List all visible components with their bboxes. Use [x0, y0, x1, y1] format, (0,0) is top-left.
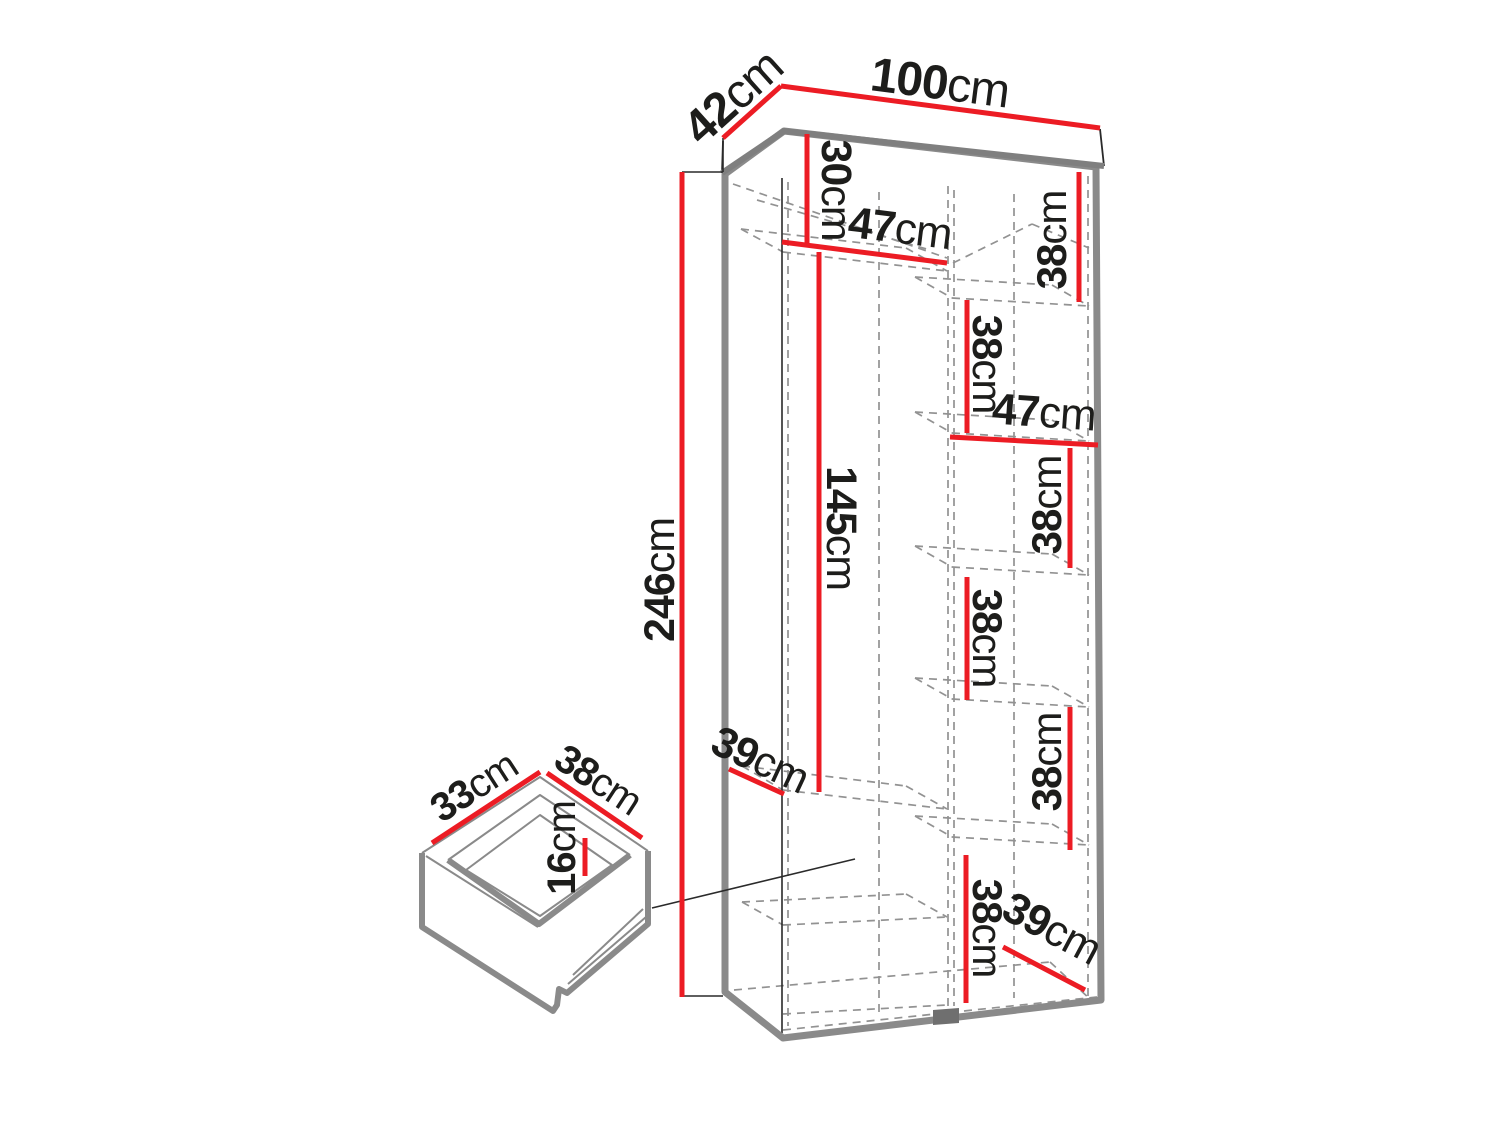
dimension-value: 38: [1023, 766, 1070, 811]
dimension-label: 38cm: [1023, 713, 1070, 812]
dimension-label: 145cm: [817, 466, 865, 590]
dimension-unit: cm: [540, 801, 584, 852]
dimension-label: 38cm: [1028, 191, 1075, 290]
dimension-value: 47: [991, 384, 1041, 436]
dimension-label: 38cm: [965, 589, 1012, 688]
dimension-value: 30: [812, 139, 860, 185]
dimension-value: 47: [846, 197, 899, 251]
dimension-value: 38: [965, 315, 1012, 360]
dimension-value: 145: [817, 466, 865, 535]
dimension-label: 47cm: [991, 384, 1098, 440]
dimension-value: 38: [965, 589, 1012, 634]
dimension-unit: cm: [1028, 191, 1075, 245]
dimension-value: 16: [540, 852, 584, 895]
diagram-canvas: 42cm100cm246cm30cm47cm145cm39cm38cm38cm4…: [0, 0, 1500, 1125]
dimension-unit: cm: [892, 203, 954, 259]
dimension-value: 100: [868, 48, 951, 110]
dimension-value: 246: [636, 573, 684, 642]
dimension-unit: cm: [1023, 456, 1070, 510]
dimension-unit: cm: [817, 535, 865, 590]
dimension-unit: cm: [965, 633, 1012, 687]
dimension-label: 16cm: [540, 801, 584, 895]
dimension-value: 38: [1023, 509, 1070, 554]
furniture-dimension-diagram: 42cm100cm246cm30cm47cm145cm39cm38cm38cm4…: [0, 0, 1500, 1125]
dimension-unit: cm: [1023, 713, 1070, 767]
dimension-unit: cm: [636, 518, 684, 573]
dimension-unit: cm: [965, 923, 1012, 977]
dimension-label: 246cm: [636, 518, 684, 642]
dimension-unit: cm: [944, 58, 1012, 118]
dimension-value: 38: [1028, 244, 1075, 289]
partition-foot: [933, 1008, 959, 1025]
dimension-label: 38cm: [1023, 456, 1070, 555]
dimension-unit: cm: [1037, 387, 1097, 440]
